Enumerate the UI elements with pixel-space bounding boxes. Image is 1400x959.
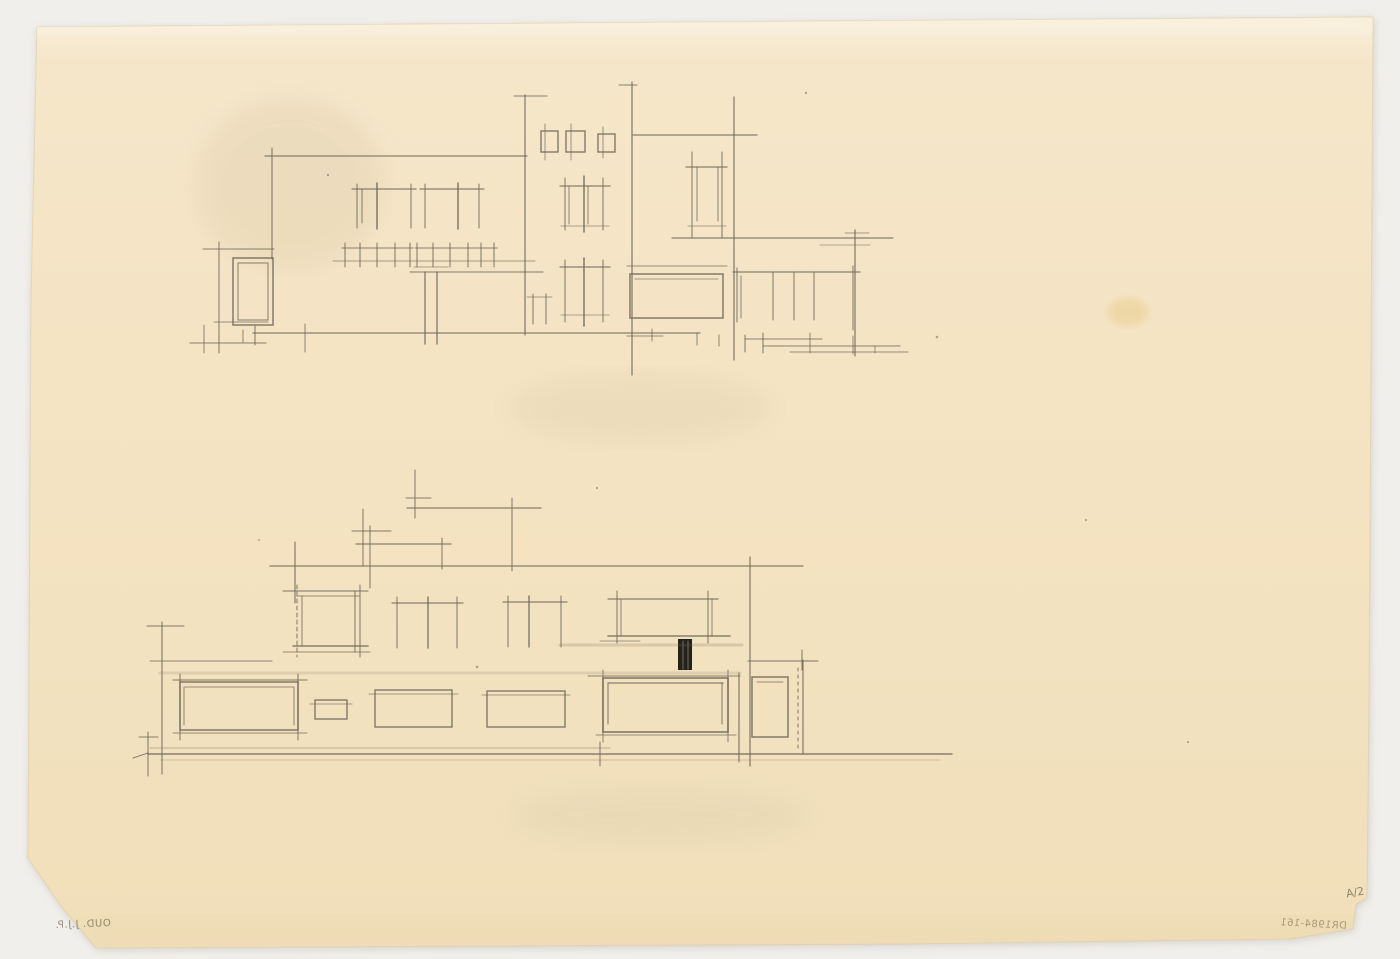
scanned-drawing-sheet: OUD. J.J.P. DR1984-161 A/2 [0,0,1400,959]
paper-smudge [510,373,770,443]
drawing-svg [0,0,1400,959]
architect-signature: OUD. J.J.P. [55,918,111,931]
paper-smudge [510,785,810,845]
paper-stain [1108,298,1148,326]
paper-top-highlight [28,17,1374,37]
